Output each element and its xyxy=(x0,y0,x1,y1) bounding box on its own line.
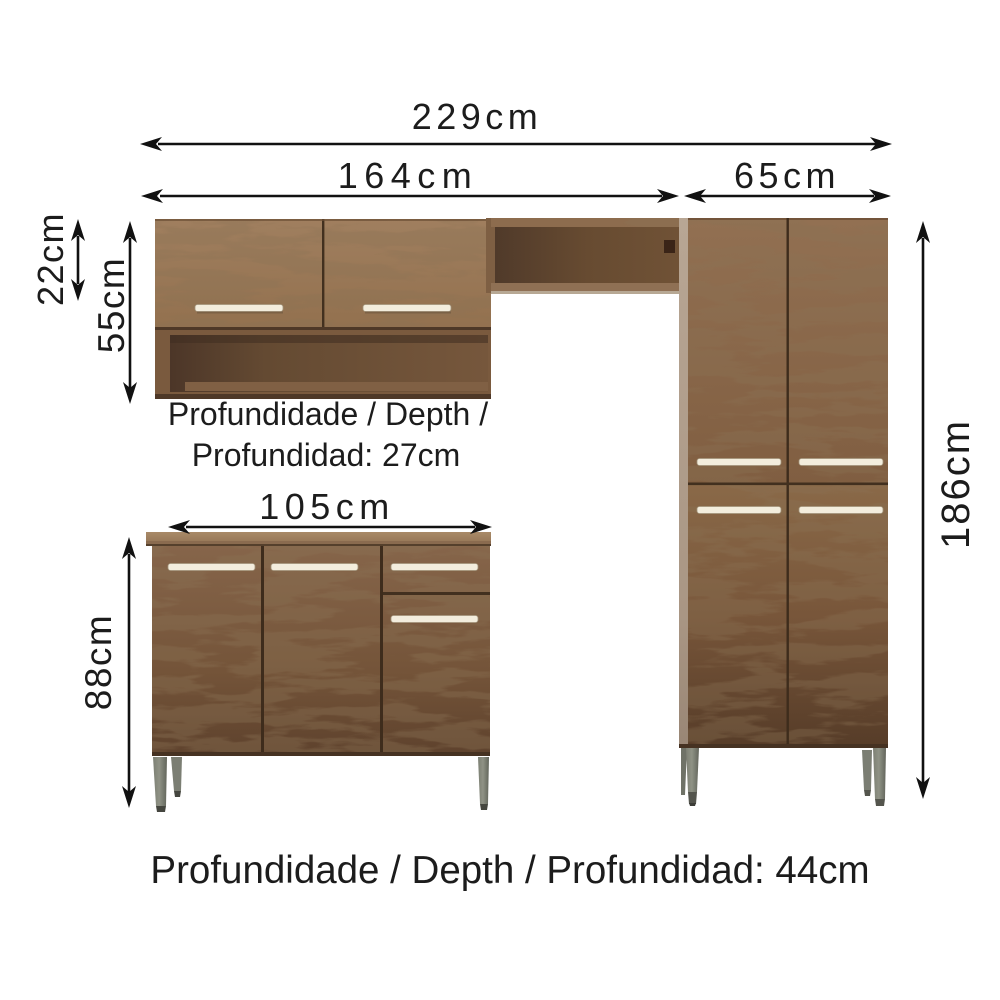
svg-text:164cm: 164cm xyxy=(338,155,479,196)
svg-text:65cm: 65cm xyxy=(734,155,840,196)
svg-text:229cm: 229cm xyxy=(412,96,543,137)
svg-text:Profundidade / Depth /: Profundidade / Depth / xyxy=(168,396,488,432)
svg-text:Profundidade / Depth / Profund: Profundidade / Depth / Profundidad: 44cm xyxy=(150,849,869,892)
svg-text:88cm: 88cm xyxy=(78,614,119,710)
svg-text:22cm: 22cm xyxy=(30,212,71,306)
svg-text:105cm: 105cm xyxy=(259,486,395,527)
svg-text:Profundidad: 27cm: Profundidad: 27cm xyxy=(192,437,461,473)
svg-text:186cm: 186cm xyxy=(934,419,978,549)
svg-text:55cm: 55cm xyxy=(91,257,132,353)
